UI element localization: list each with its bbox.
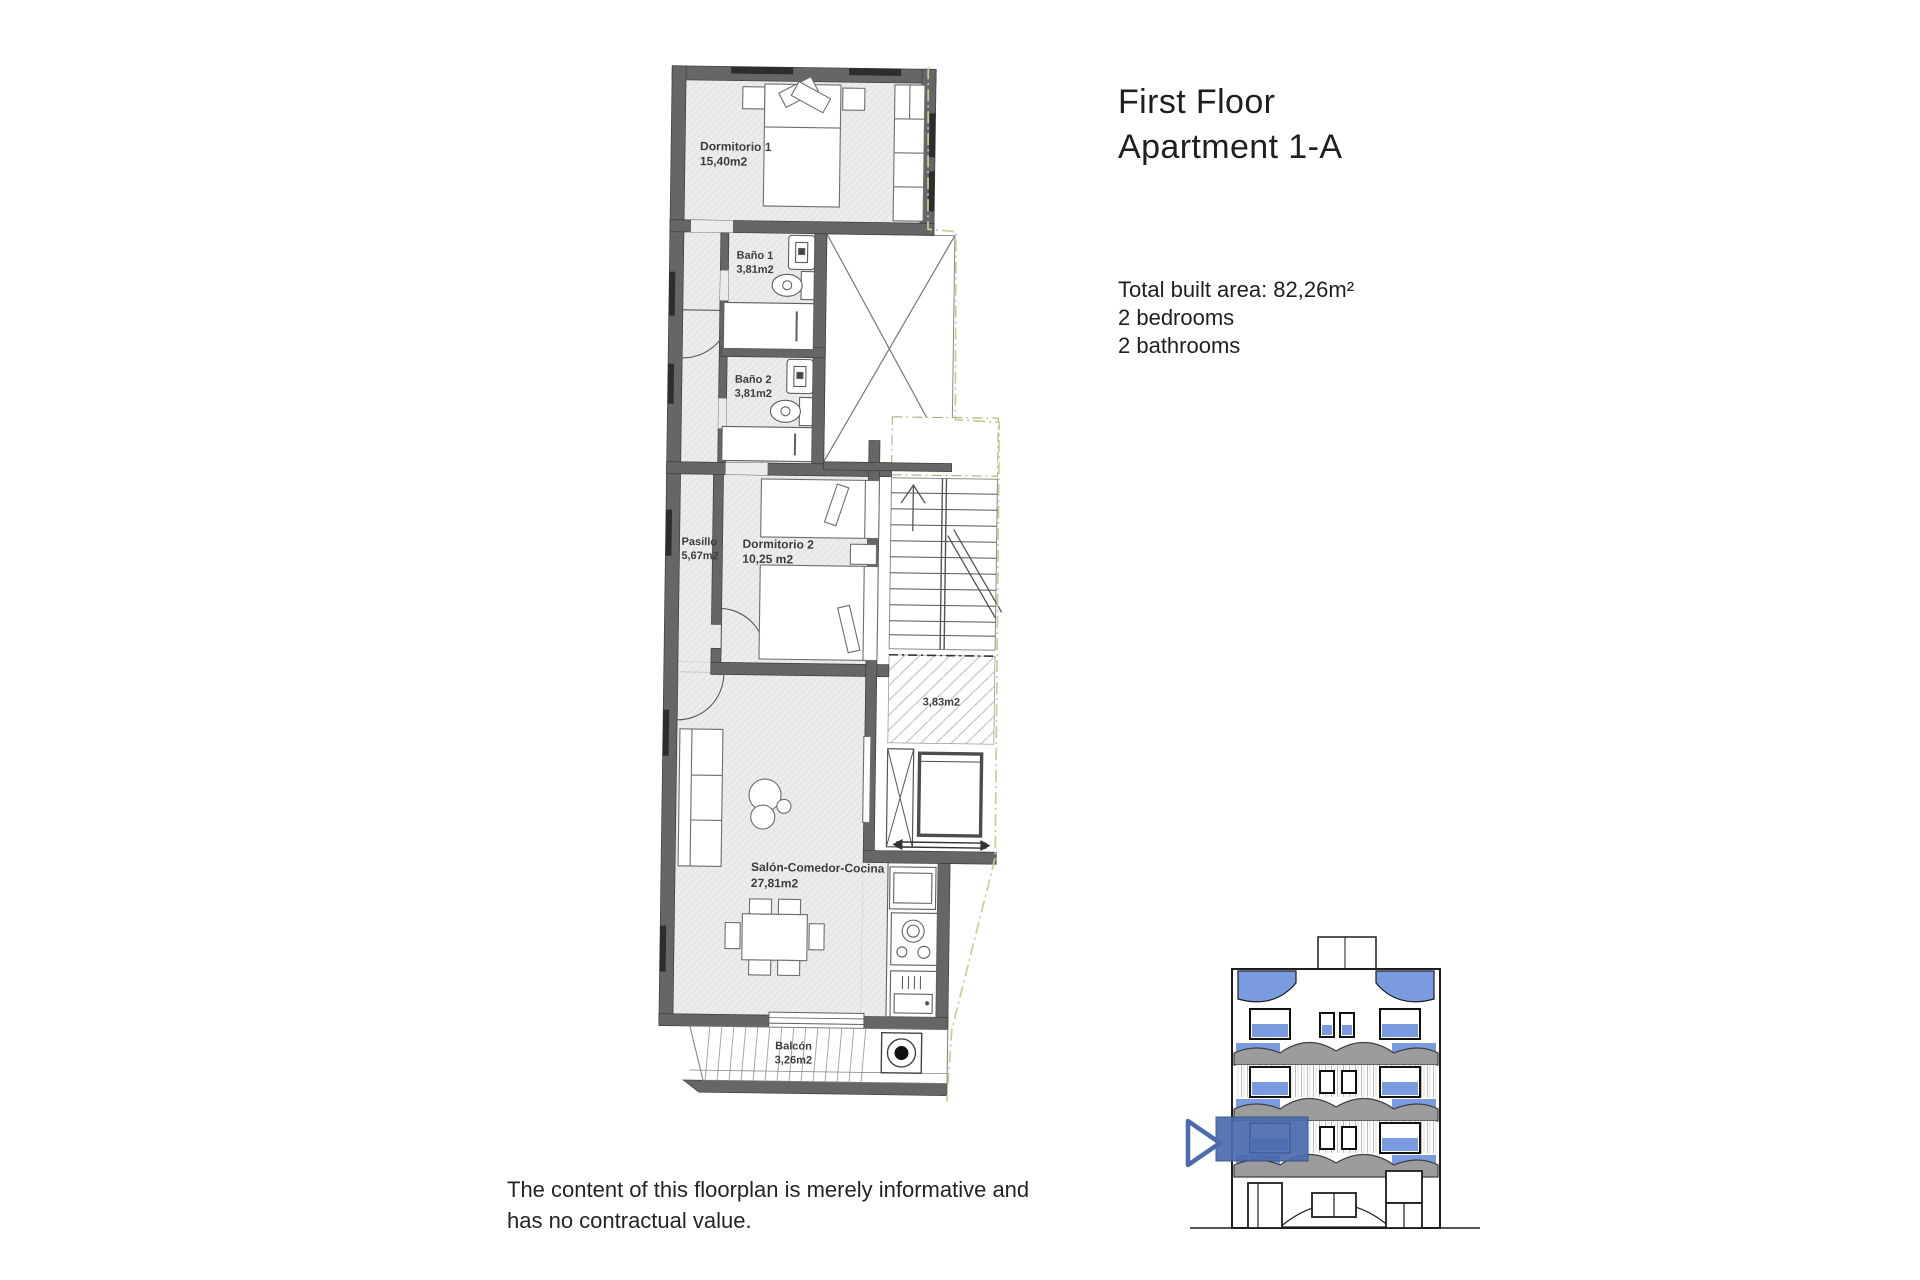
title-line1: First Floor (1118, 80, 1342, 125)
tv-unit-glyph (863, 736, 871, 822)
balcony-door (769, 1012, 864, 1024)
summary-block: Total built area: 82,26m² 2 bedrooms 2 b… (1118, 276, 1354, 360)
bathrooms-count: 2 bathrooms (1118, 332, 1354, 360)
roof-bulkhead (1318, 937, 1376, 969)
title-line2: Apartment 1-A (1118, 125, 1342, 170)
bano2-area: 3,81m2 (735, 388, 772, 401)
toilet-tank-glyph (801, 271, 814, 299)
dining-table-glyph (742, 914, 808, 961)
landing-area-label: 3,83m2 (923, 696, 960, 709)
elevator (886, 749, 991, 851)
dormitorio2-label: Dormitorio 2 (742, 537, 814, 552)
dormitorio2-area: 10,25 m2 (742, 552, 793, 567)
shower-glyph (722, 426, 812, 461)
disclaimer-line2: has no contractual value. (507, 1205, 1029, 1236)
bano2-label: Baño 2 (735, 374, 772, 387)
apartment-marker (1216, 1117, 1308, 1161)
disclaimer: The content of this floorplan is merely … (507, 1174, 1029, 1236)
bano1-label: Baño 1 (737, 250, 774, 263)
salon-area: 27,81m2 (751, 876, 799, 891)
apartment-arrow-icon (1188, 1121, 1220, 1165)
total-built-area: Total built area: 82,26m² (1118, 276, 1354, 304)
page-title: First Floor Apartment 1-A (1118, 80, 1342, 170)
toilet-tank-glyph (799, 397, 812, 425)
stairwell (889, 417, 1004, 651)
dormitorio2-furniture (759, 479, 880, 661)
landing: 3,83m2 (888, 655, 995, 744)
salon-label: Salón-Comedor-Cocina (751, 860, 885, 876)
balcon-label: Balcón (775, 1040, 812, 1053)
bedrooms-count: 2 bedrooms (1118, 304, 1354, 332)
floorplan: 3,83m2 (653, 58, 1018, 1113)
sofa-glyph (678, 729, 723, 867)
pasillo-area: 5,67m2 (681, 550, 718, 563)
bano1-area: 3,81m2 (736, 264, 773, 277)
building-elevation (1180, 925, 1490, 1255)
balcon-area: 3,26m2 (775, 1054, 812, 1067)
kitchen (886, 863, 938, 1018)
balcony (689, 1026, 948, 1084)
page: 3,83m2 (0, 0, 1920, 1280)
disclaimer-line1: The content of this floorplan is merely … (507, 1174, 1029, 1205)
pasillo-label: Pasillo (682, 536, 718, 548)
dormitorio1-label: Dormitorio 1 (700, 139, 772, 154)
shower-glyph (723, 302, 814, 349)
dormitorio1-area: 15,40m2 (700, 154, 748, 169)
